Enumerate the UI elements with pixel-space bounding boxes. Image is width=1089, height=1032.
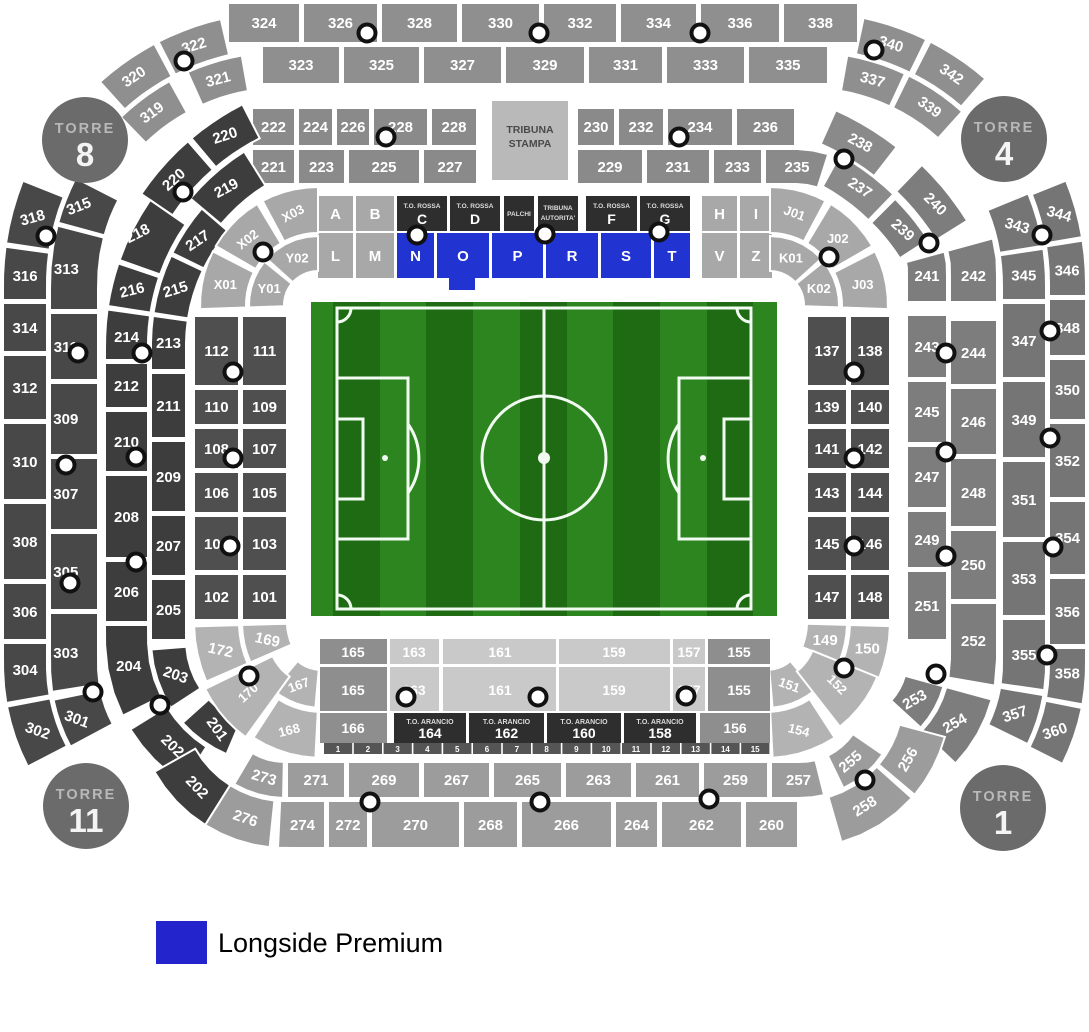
svg-text:13: 13 <box>691 745 700 754</box>
svg-text:351: 351 <box>1011 492 1036 509</box>
svg-text:226: 226 <box>340 119 365 136</box>
svg-text:11: 11 <box>632 745 641 754</box>
svg-text:AUTORITA': AUTORITA' <box>541 215 576 222</box>
svg-text:246: 246 <box>961 414 986 431</box>
svg-text:4: 4 <box>995 135 1014 172</box>
svg-text:159: 159 <box>602 644 626 660</box>
svg-text:TORRE: TORRE <box>56 787 117 803</box>
svg-text:212: 212 <box>114 378 139 395</box>
svg-text:304: 304 <box>13 662 39 679</box>
svg-text:11: 11 <box>69 802 104 839</box>
svg-text:TORRE: TORRE <box>973 789 1034 805</box>
svg-text:105: 105 <box>252 485 277 502</box>
svg-text:111: 111 <box>253 343 276 360</box>
svg-text:I: I <box>754 206 758 223</box>
svg-text:TORRE: TORRE <box>55 121 116 137</box>
svg-text:155: 155 <box>727 682 751 698</box>
svg-text:204: 204 <box>116 658 142 675</box>
svg-text:213: 213 <box>156 335 181 352</box>
svg-text:PALCHI: PALCHI <box>507 211 531 218</box>
svg-text:208: 208 <box>114 509 139 526</box>
svg-text:222: 222 <box>261 119 286 136</box>
svg-text:356: 356 <box>1055 604 1080 621</box>
svg-text:303: 303 <box>53 645 78 662</box>
svg-text:145: 145 <box>814 536 839 553</box>
svg-text:TRIBUNA: TRIBUNA <box>506 124 554 136</box>
svg-text:314: 314 <box>12 320 38 337</box>
svg-text:144: 144 <box>857 485 883 502</box>
svg-text:326: 326 <box>328 15 353 32</box>
svg-text:227: 227 <box>437 159 462 176</box>
svg-text:329: 329 <box>532 57 557 74</box>
svg-text:332: 332 <box>567 15 592 32</box>
svg-text:P: P <box>512 248 522 265</box>
svg-text:157: 157 <box>677 644 701 660</box>
svg-text:235: 235 <box>784 159 809 176</box>
svg-text:338: 338 <box>808 15 833 32</box>
svg-text:Longside Premium: Longside Premium <box>218 928 443 958</box>
svg-text:266: 266 <box>554 817 579 834</box>
svg-text:T.O. ROSSA: T.O. ROSSA <box>647 203 684 210</box>
svg-text:L: L <box>331 248 340 265</box>
svg-text:225: 225 <box>371 159 396 176</box>
svg-text:158: 158 <box>648 725 672 741</box>
svg-text:211: 211 <box>156 398 180 415</box>
svg-text:271: 271 <box>303 772 328 789</box>
svg-text:267: 267 <box>444 772 469 789</box>
svg-text:14: 14 <box>721 745 730 754</box>
svg-text:101: 101 <box>252 589 277 606</box>
svg-text:150: 150 <box>855 641 880 658</box>
svg-text:X01: X01 <box>214 277 237 292</box>
svg-text:149: 149 <box>813 632 838 649</box>
svg-text:269: 269 <box>371 772 396 789</box>
svg-text:249: 249 <box>914 532 939 549</box>
svg-text:261: 261 <box>655 772 680 789</box>
svg-text:336: 336 <box>727 15 752 32</box>
svg-text:242: 242 <box>961 268 986 285</box>
svg-text:233: 233 <box>725 159 750 176</box>
svg-text:J02: J02 <box>827 231 849 246</box>
svg-text:223: 223 <box>309 159 334 176</box>
svg-text:143: 143 <box>814 485 839 502</box>
svg-text:15: 15 <box>751 745 760 754</box>
svg-text:245: 245 <box>914 404 939 421</box>
svg-text:307: 307 <box>53 486 78 503</box>
svg-text:T.O. ROSSA: T.O. ROSSA <box>593 203 630 210</box>
svg-text:Y01: Y01 <box>258 281 281 296</box>
svg-text:274: 274 <box>290 817 316 834</box>
svg-text:TRIBUNA: TRIBUNA <box>543 205 573 212</box>
svg-text:251: 251 <box>914 598 939 615</box>
svg-text:K02: K02 <box>807 281 831 296</box>
svg-text:325: 325 <box>369 57 394 74</box>
svg-text:156: 156 <box>723 720 747 736</box>
svg-text:3: 3 <box>395 745 400 754</box>
svg-text:270: 270 <box>403 817 428 834</box>
svg-text:333: 333 <box>693 57 718 74</box>
svg-text:309: 309 <box>53 411 78 428</box>
svg-text:J03: J03 <box>852 277 874 292</box>
svg-text:214: 214 <box>114 329 140 346</box>
svg-text:323: 323 <box>288 57 313 74</box>
svg-text:TORRE: TORRE <box>974 120 1035 136</box>
svg-text:163: 163 <box>402 644 426 660</box>
svg-text:161: 161 <box>488 644 512 660</box>
svg-text:231: 231 <box>665 159 690 176</box>
svg-text:106: 106 <box>204 485 229 502</box>
svg-text:207: 207 <box>156 538 181 555</box>
svg-text:8: 8 <box>544 745 549 754</box>
svg-text:330: 330 <box>488 15 513 32</box>
svg-text:335: 335 <box>775 57 800 74</box>
svg-text:Z: Z <box>751 248 760 265</box>
svg-text:STAMPA: STAMPA <box>509 138 552 150</box>
svg-text:347: 347 <box>1011 333 1036 350</box>
svg-text:241: 241 <box>914 268 939 285</box>
svg-text:N: N <box>410 248 421 265</box>
svg-text:159: 159 <box>602 682 626 698</box>
svg-text:205: 205 <box>156 602 181 619</box>
svg-text:162: 162 <box>495 725 519 741</box>
svg-text:T.O. ROSSA: T.O. ROSSA <box>457 203 494 210</box>
svg-text:M: M <box>369 248 382 265</box>
svg-text:103: 103 <box>252 536 277 553</box>
svg-text:T.O. ROSSA: T.O. ROSSA <box>404 203 441 210</box>
svg-text:268: 268 <box>478 817 503 834</box>
svg-text:109: 109 <box>252 399 277 416</box>
svg-text:244: 244 <box>961 345 987 362</box>
svg-text:350: 350 <box>1055 382 1080 399</box>
svg-text:358: 358 <box>1055 666 1080 683</box>
svg-text:316: 316 <box>13 268 38 285</box>
svg-text:9: 9 <box>574 745 579 754</box>
svg-text:306: 306 <box>12 604 37 621</box>
svg-text:164: 164 <box>418 725 442 741</box>
svg-text:224: 224 <box>303 119 329 136</box>
svg-text:346: 346 <box>1055 263 1080 280</box>
svg-text:S: S <box>621 248 631 265</box>
svg-text:8: 8 <box>76 136 94 173</box>
svg-text:140: 140 <box>857 399 882 416</box>
svg-text:138: 138 <box>857 343 882 360</box>
svg-text:T: T <box>667 248 676 265</box>
svg-text:V: V <box>714 248 724 265</box>
svg-text:234: 234 <box>687 119 713 136</box>
svg-text:161: 161 <box>488 682 512 698</box>
svg-text:C: C <box>417 211 427 227</box>
svg-text:141: 141 <box>814 441 839 458</box>
svg-text:1: 1 <box>336 745 341 754</box>
svg-text:147: 147 <box>814 589 839 606</box>
svg-text:Y02: Y02 <box>286 251 309 266</box>
svg-text:232: 232 <box>628 119 653 136</box>
svg-text:355: 355 <box>1011 647 1036 664</box>
svg-text:10: 10 <box>602 745 611 754</box>
svg-text:K01: K01 <box>779 251 803 266</box>
svg-text:H: H <box>714 206 725 223</box>
svg-text:1: 1 <box>994 804 1012 841</box>
svg-text:5: 5 <box>455 745 460 754</box>
svg-text:229: 229 <box>597 159 622 176</box>
svg-text:2: 2 <box>366 745 371 754</box>
svg-text:310: 310 <box>12 454 37 471</box>
svg-text:265: 265 <box>515 772 540 789</box>
svg-text:209: 209 <box>156 469 181 486</box>
svg-text:313: 313 <box>54 261 79 278</box>
svg-text:272: 272 <box>335 817 360 834</box>
svg-text:221: 221 <box>261 159 286 176</box>
svg-text:334: 334 <box>646 15 672 32</box>
svg-text:102: 102 <box>204 589 229 606</box>
svg-text:6: 6 <box>485 745 490 754</box>
svg-text:263: 263 <box>586 772 611 789</box>
svg-text:349: 349 <box>1011 412 1036 429</box>
svg-text:12: 12 <box>661 745 670 754</box>
svg-text:110: 110 <box>204 399 228 416</box>
svg-text:264: 264 <box>624 817 650 834</box>
svg-text:247: 247 <box>914 469 939 486</box>
svg-text:230: 230 <box>583 119 608 136</box>
svg-text:248: 248 <box>961 485 986 502</box>
svg-text:257: 257 <box>786 772 811 789</box>
svg-text:F: F <box>607 211 616 227</box>
svg-text:236: 236 <box>753 119 778 136</box>
svg-text:345: 345 <box>1011 268 1036 285</box>
svg-text:139: 139 <box>814 399 839 416</box>
svg-text:160: 160 <box>572 725 596 741</box>
svg-text:259: 259 <box>723 772 748 789</box>
svg-text:308: 308 <box>12 534 37 551</box>
svg-text:7: 7 <box>515 745 520 754</box>
svg-text:165: 165 <box>341 682 365 698</box>
svg-text:353: 353 <box>1011 571 1036 588</box>
svg-text:155: 155 <box>727 644 751 660</box>
svg-text:B: B <box>370 206 381 223</box>
svg-text:166: 166 <box>341 720 365 736</box>
svg-text:327: 327 <box>450 57 475 74</box>
svg-text:252: 252 <box>961 633 986 650</box>
svg-text:4: 4 <box>425 745 430 754</box>
svg-text:262: 262 <box>689 817 714 834</box>
svg-text:250: 250 <box>961 557 986 574</box>
svg-text:D: D <box>470 211 480 227</box>
svg-text:312: 312 <box>12 380 37 397</box>
svg-text:R: R <box>567 248 578 265</box>
svg-text:A: A <box>330 206 341 223</box>
svg-text:206: 206 <box>114 584 139 601</box>
svg-text:137: 137 <box>814 343 839 360</box>
svg-text:148: 148 <box>857 589 882 606</box>
svg-text:260: 260 <box>759 817 784 834</box>
svg-text:165: 165 <box>341 644 365 660</box>
svg-text:O: O <box>457 248 469 265</box>
svg-text:107: 107 <box>252 441 277 458</box>
svg-text:331: 331 <box>613 57 638 74</box>
svg-text:228: 228 <box>441 119 466 136</box>
svg-text:112: 112 <box>204 343 228 360</box>
svg-text:352: 352 <box>1055 453 1080 470</box>
svg-text:324: 324 <box>251 15 277 32</box>
svg-text:328: 328 <box>407 15 432 32</box>
